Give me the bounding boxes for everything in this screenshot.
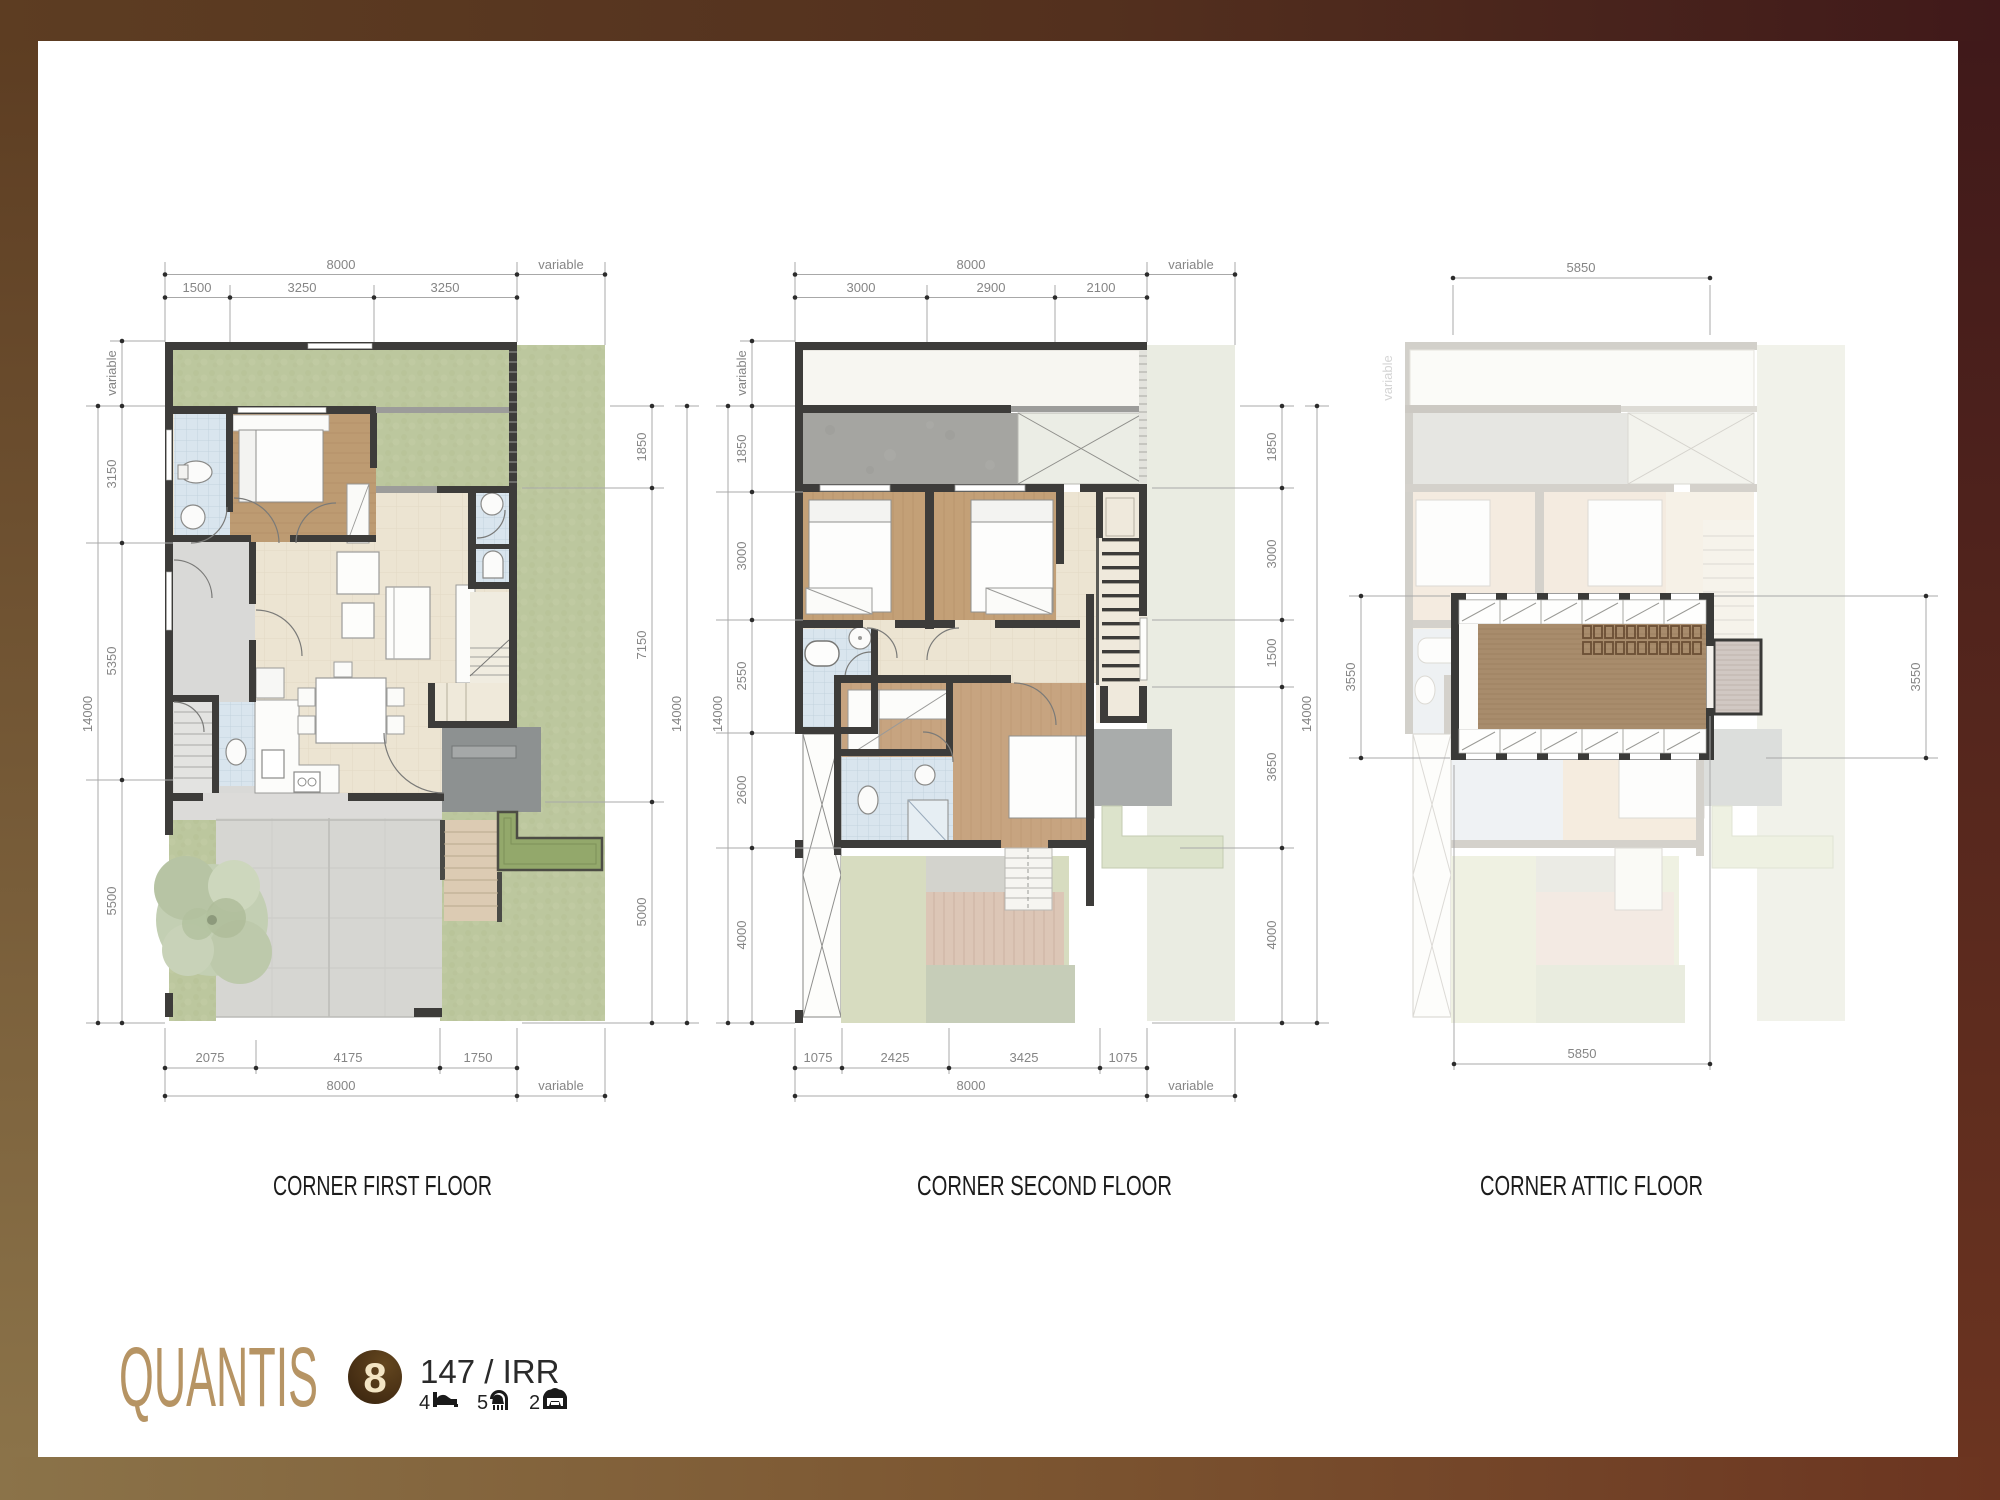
svg-text:14000: 14000	[1299, 696, 1314, 732]
svg-text:1850: 1850	[1264, 433, 1279, 462]
svg-text:1850: 1850	[734, 435, 749, 464]
svg-text:1500: 1500	[183, 280, 212, 295]
svg-text:14000: 14000	[669, 696, 684, 732]
svg-text:14000: 14000	[80, 696, 95, 732]
svg-text:3250: 3250	[288, 280, 317, 295]
svg-text:1850: 1850	[634, 433, 649, 462]
svg-text:3550: 3550	[1343, 663, 1358, 692]
svg-text:3000: 3000	[734, 542, 749, 571]
svg-text:variable: variable	[538, 257, 584, 272]
svg-text:3650: 3650	[1264, 753, 1279, 782]
svg-text:4: 4	[419, 1392, 430, 1414]
svg-text:2075: 2075	[196, 1050, 225, 1065]
svg-text:3000: 3000	[1264, 540, 1279, 569]
svg-text:1750: 1750	[464, 1050, 493, 1065]
svg-text:variable: variable	[1168, 257, 1214, 272]
svg-text:2: 2	[529, 1392, 540, 1414]
svg-text:CORNER SECOND FLOOR: CORNER SECOND FLOOR	[917, 1170, 1172, 1201]
svg-text:2900: 2900	[977, 280, 1006, 295]
svg-text:3150: 3150	[104, 460, 119, 489]
svg-text:5: 5	[477, 1392, 488, 1414]
svg-text:CORNER FIRST FLOOR: CORNER FIRST FLOOR	[273, 1170, 492, 1201]
svg-text:5350: 5350	[104, 647, 119, 676]
svg-text:147 / IRR: 147 / IRR	[420, 1353, 559, 1390]
svg-text:5500: 5500	[104, 887, 119, 916]
svg-text:QUANTIS: QUANTIS	[119, 1330, 318, 1424]
svg-text:3000: 3000	[847, 280, 876, 295]
svg-text:1075: 1075	[804, 1050, 833, 1065]
svg-text:7150: 7150	[634, 631, 649, 660]
svg-text:2100: 2100	[1087, 280, 1116, 295]
svg-text:2425: 2425	[881, 1050, 910, 1065]
svg-text:2550: 2550	[734, 662, 749, 691]
svg-text:3550: 3550	[1908, 663, 1923, 692]
svg-text:8000: 8000	[957, 257, 986, 272]
svg-text:CORNER ATTIC FLOOR: CORNER ATTIC FLOOR	[1480, 1170, 1703, 1201]
svg-text:1500: 1500	[1264, 639, 1279, 668]
svg-text:4000: 4000	[734, 921, 749, 950]
svg-text:variable: variable	[1380, 355, 1395, 401]
svg-text:2600: 2600	[734, 776, 749, 805]
svg-text:8000: 8000	[957, 1078, 986, 1093]
svg-text:8000: 8000	[327, 1078, 356, 1093]
svg-text:5850: 5850	[1568, 1046, 1597, 1061]
svg-text:5850: 5850	[1567, 260, 1596, 275]
svg-text:variable: variable	[538, 1078, 584, 1093]
svg-text:5000: 5000	[634, 898, 649, 927]
svg-text:4175: 4175	[334, 1050, 363, 1065]
svg-text:8: 8	[363, 1354, 386, 1401]
svg-text:14000: 14000	[710, 696, 725, 732]
svg-text:4000: 4000	[1264, 921, 1279, 950]
svg-text:3250: 3250	[431, 280, 460, 295]
svg-text:1075: 1075	[1109, 1050, 1138, 1065]
svg-text:variable: variable	[1168, 1078, 1214, 1093]
svg-text:8000: 8000	[327, 257, 356, 272]
svg-text:variable: variable	[104, 350, 119, 396]
svg-text:3425: 3425	[1010, 1050, 1039, 1065]
svg-text:variable: variable	[734, 350, 749, 396]
